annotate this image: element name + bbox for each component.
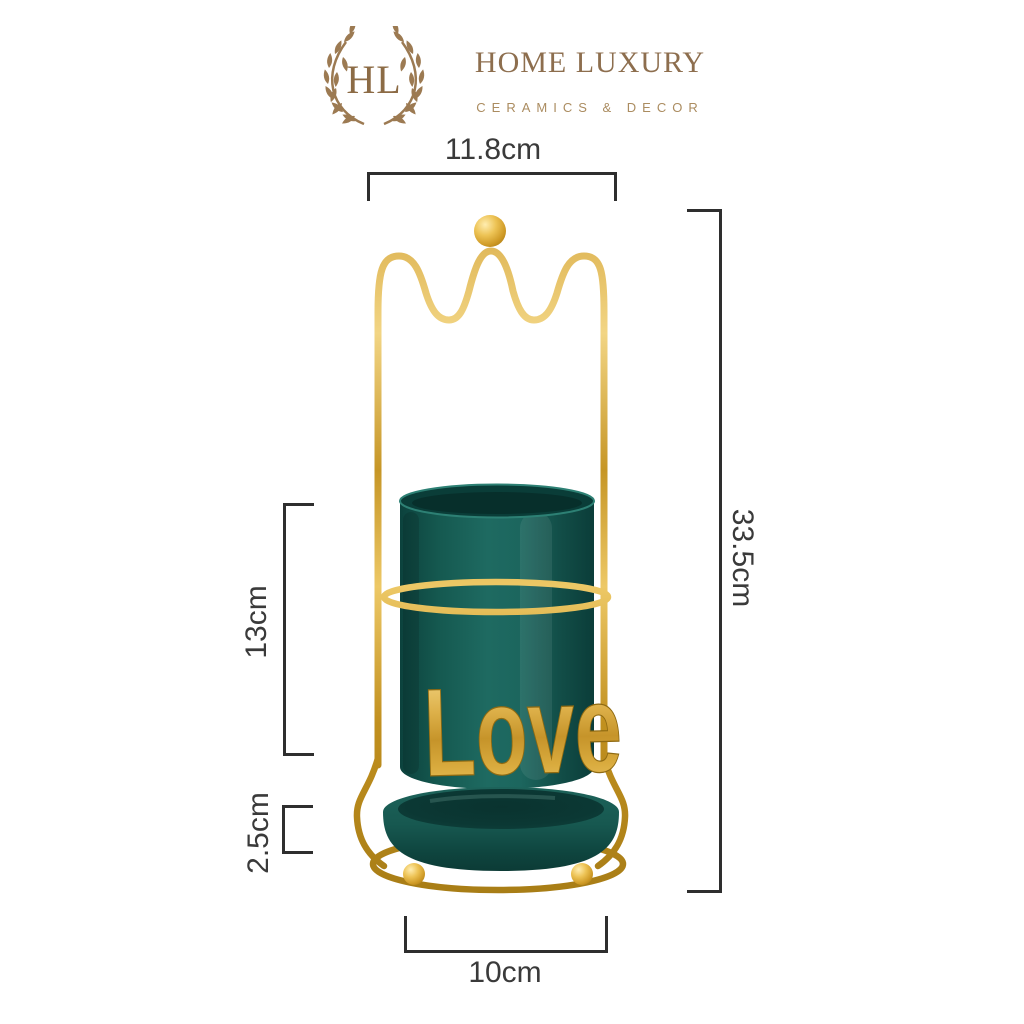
dimension-total-height-bracket — [687, 209, 722, 893]
dimension-cup-height-bracket — [283, 503, 314, 756]
cup-interior — [412, 492, 582, 514]
dimension-cup-height-label: 13cm — [240, 585, 274, 658]
cup-shade — [403, 512, 419, 774]
dimension-base-width-label: 10cm — [380, 956, 630, 990]
product-love-text: Love — [422, 659, 624, 803]
product-dimension-figure: HL HOME LUXURY CERAMICS & DECOR 11.8cm 3… — [0, 0, 1024, 1024]
dimension-tray-height-bracket — [282, 805, 313, 854]
stand-finial-ball — [474, 215, 506, 247]
stand-foot-left — [403, 863, 425, 885]
stand-foot-right — [571, 863, 593, 885]
dimension-tray-height-label: 2.5cm — [242, 792, 276, 874]
brand-tagline: CERAMICS & DECOR — [462, 100, 718, 115]
brand-name: HOME LUXURY — [462, 46, 718, 80]
brand-initials: HL — [312, 26, 436, 130]
dimension-base-width-bracket — [404, 916, 608, 953]
stand-flare-left — [357, 758, 384, 866]
product-illustration: Love — [330, 195, 690, 915]
brand-logo: HL — [312, 26, 436, 130]
dimension-top-width-label: 11.8cm — [368, 133, 618, 167]
dimension-total-height-label: 33.5cm — [725, 509, 759, 607]
